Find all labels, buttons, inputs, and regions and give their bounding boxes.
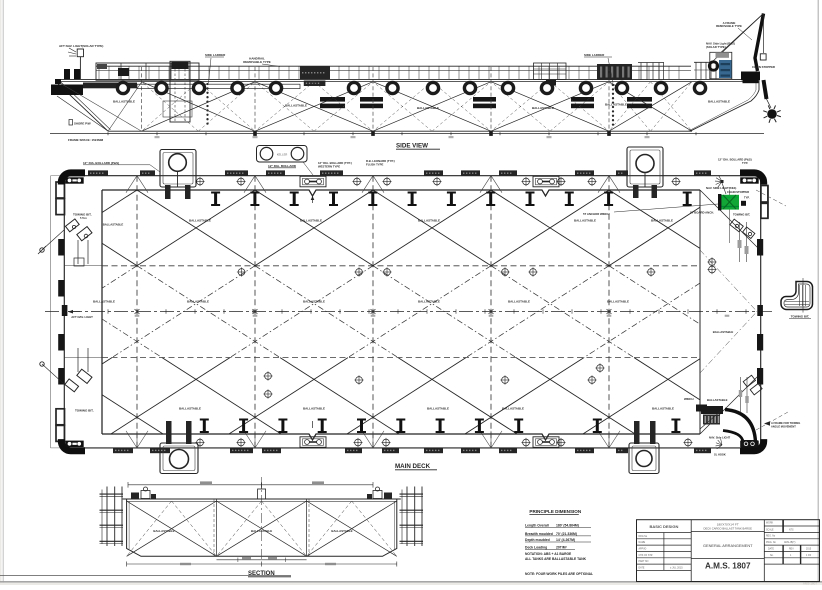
svg-text:FLUSH TYPE: FLUSH TYPE (366, 162, 384, 166)
svg-text:1 OF: 1 OF (806, 555, 812, 557)
svg-text:SIDE VIEW: SIDE VIEW (396, 143, 428, 150)
svg-text:BALLASTABLE: BALLASTABLE (708, 100, 730, 104)
svg-text:(SOLAR TYPE): (SOLAR TYPE) (706, 45, 726, 49)
svg-text:5T ANCHOR WINCH: 5T ANCHOR WINCH (583, 212, 609, 216)
svg-text:TOWING BIT,: TOWING BIT, (791, 314, 810, 318)
svg-text:12" DIA. BOLLARD (P&S): 12" DIA. BOLLARD (P&S) (83, 161, 119, 165)
svg-text:BALLASTABLE: BALLASTABLE (502, 407, 524, 411)
svg-text:CHAIN STOPPER: CHAIN STOPPER (752, 65, 775, 69)
svg-text:AMS-JB(T): AMS-JB(T) (784, 541, 796, 544)
svg-text:Deck Loading: Deck Loading (525, 545, 547, 549)
svg-text:CHK OF STR: CHK OF STR (639, 555, 653, 557)
svg-text:NTS: NTS (789, 529, 794, 531)
svg-text:REV: REV (789, 549, 794, 551)
svg-text:A.M.S. 1807: A.M.S. 1807 (705, 562, 751, 571)
svg-text:WORK: WORK (766, 523, 774, 525)
svg-text:BALLASTABLE: BALLASTABLE (251, 529, 272, 533)
svg-text:BALLASTABLE: BALLASTABLE (303, 407, 325, 411)
svg-text:BALLASTABLE: BALLASTABLE (103, 223, 124, 227)
svg-text:AFT NAV. LIGHT(SOLAR TYPE): AFT NAV. LIGHT(SOLAR TYPE) (59, 44, 103, 48)
svg-text:BALLASTABLE: BALLASTABLE (153, 529, 174, 533)
svg-text:BALLASTABLE: BALLASTABLE (303, 300, 325, 304)
svg-text:BALLASTABLE: BALLASTABLE (607, 300, 629, 304)
svg-text:ALL TANKS ARE BALLASTABLE TANK: ALL TANKS ARE BALLASTABLE TANK (525, 557, 587, 561)
svg-text:SCALE: SCALE (766, 528, 774, 531)
svg-text:PART NO: PART NO (639, 560, 649, 563)
svg-text:NAME: NAME (639, 541, 646, 544)
svg-text:AFT NAV. LIGHT: AFT NAV. LIGHT (71, 315, 93, 319)
svg-text:BALLASTABLE: BALLASTABLE (605, 103, 627, 107)
svg-text:SHORE P/W: SHORE P/W (74, 122, 91, 126)
svg-text:ANGLE MOVEMENT: ANGLE MOVEMENT (771, 424, 796, 428)
svg-text:TOWING BIT,: TOWING BIT, (73, 212, 92, 216)
svg-text:WESTERN TYPE: WESTERN TYPE (318, 165, 340, 169)
svg-text:BALLASTABLE: BALLASTABLE (713, 330, 734, 334)
svg-text:BALLASTABLE: BALLASTABLE (113, 100, 135, 104)
svg-text:180' (54.864M): 180' (54.864M) (556, 523, 579, 527)
svg-text:BALLASTABLE: BALLASTABLE (189, 219, 211, 223)
svg-text:TOWING BIT,: TOWING BIT, (733, 212, 750, 216)
svg-text:GENERAL ARRANGEMENT: GENERAL ARRANGEMENT (703, 543, 753, 548)
svg-text:Depth moulded: Depth moulded (525, 538, 550, 542)
svg-text:BALLASTABLE: BALLASTABLE (93, 300, 115, 304)
svg-text:BALLASTABLE: BALLASTABLE (707, 398, 728, 402)
svg-text:BALLASTABLE: BALLASTABLE (331, 529, 352, 533)
svg-text:180'X70'X14' FT: 180'X70'X14' FT (717, 522, 739, 526)
svg-text:20T/M²: 20T/M² (556, 545, 568, 549)
svg-text:Length Overall: Length Overall (525, 523, 549, 527)
svg-text:FRAME SPACE: 1524MM: FRAME SPACE: 1524MM (68, 138, 104, 142)
svg-text:NOTATION: ABS + A1 BARGE: NOTATION: ABS + A1 BARGE (525, 552, 572, 556)
svg-text:BALLASTABLE: BALLASTABLE (427, 407, 449, 411)
svg-text:TOWING BIT,: TOWING BIT, (75, 408, 94, 412)
svg-text:DECK CARGO BALLAST TANK BARGE: DECK CARGO BALLAST TANK BARGE (704, 527, 753, 531)
svg-text:AMS-1807: AMS-1807 (803, 582, 818, 585)
svg-text:WINCH: WINCH (684, 397, 693, 401)
svg-text:BALLASTABLE: BALLASTABLE (532, 106, 554, 110)
svg-text:KELLER: KELLER (277, 152, 288, 156)
svg-text:NOTE: FOUR WORK PILES ARE OPTI: NOTE: FOUR WORK PILES ARE OPTIONAL (525, 572, 593, 576)
svg-text:BALLASTABLE: BALLASTABLE (508, 300, 530, 304)
svg-text:± JUL 2015: ± JUL 2015 (670, 567, 683, 570)
svg-text:5 Ton: 5 Ton (80, 216, 87, 220)
svg-text:APPVD: APPVD (639, 548, 647, 551)
svg-text:BALLASTABLE: BALLASTABLE (300, 219, 322, 223)
svg-text:2015: 2015 (806, 549, 812, 551)
svg-text:BALLASTABLE: BALLASTABLE (418, 300, 440, 304)
svg-text:REMOVABLE TYPE: REMOVABLE TYPE (243, 60, 271, 64)
svg-text:12" DIA. BOLLARD: 12" DIA. BOLLARD (268, 164, 297, 168)
svg-text:DRG No: DRG No (639, 536, 648, 538)
svg-text:REG. No: REG. No (766, 536, 776, 538)
svg-text:No.: No. (770, 555, 774, 557)
svg-text:SECTION: SECTION (248, 571, 275, 577)
svg-text:BALLASTABLE: BALLASTABLE (285, 104, 307, 108)
svg-text:TYP.: TYP. (744, 195, 750, 199)
svg-text:BALLASTABLE: BALLASTABLE (651, 219, 673, 223)
svg-text:BALLASTABLE: BALLASTABLE (418, 219, 440, 223)
svg-text:BALLASTABLE: BALLASTABLE (187, 300, 209, 304)
svg-text:SL HOOK: SL HOOK (714, 452, 726, 456)
svg-text:BALLASTABLE: BALLASTABLE (652, 407, 674, 411)
svg-text:MAIN DECK: MAIN DECK (395, 463, 431, 470)
svg-text:REMOVABLE TYPE: REMOVABLE TYPE (716, 24, 742, 28)
svg-text:BALLASTABLE: BALLASTABLE (574, 219, 596, 223)
svg-text:DATE: DATE (639, 567, 645, 570)
svg-text:NAV. Side LIGHT: NAV. Side LIGHT (709, 435, 731, 439)
svg-text:CHAIN STOPPER: CHAIN STOPPER (727, 190, 749, 194)
svg-text:SIDE LADDER: SIDE LADDER (205, 53, 226, 57)
svg-text:SIDE LADDER: SIDE LADDER (584, 53, 605, 57)
svg-text:TYP.: TYP. (742, 161, 748, 165)
svg-text:BALLASTABLE: BALLASTABLE (417, 106, 439, 110)
svg-text:BALLASTABLE: BALLASTABLE (179, 407, 201, 411)
svg-text:70' (21.336M): 70' (21.336M) (556, 532, 577, 536)
svg-text:DATE: DATE (768, 548, 774, 551)
svg-text:BASIC DESIGN: BASIC DESIGN (649, 524, 678, 529)
svg-text:Breadth moulded: Breadth moulded (525, 532, 553, 536)
svg-text:ST'BOARD ANCH.: ST'BOARD ANCH. (690, 210, 714, 214)
svg-text:14' (4.267M): 14' (4.267M) (556, 538, 575, 542)
svg-text:NAV. SIDE LIGHT(P&S): NAV. SIDE LIGHT(P&S) (706, 186, 736, 190)
svg-text:DWG. No: DWG. No (766, 542, 777, 544)
svg-text:PRINCIPLE DIMENSION: PRINCIPLE DIMENSION (529, 509, 581, 514)
